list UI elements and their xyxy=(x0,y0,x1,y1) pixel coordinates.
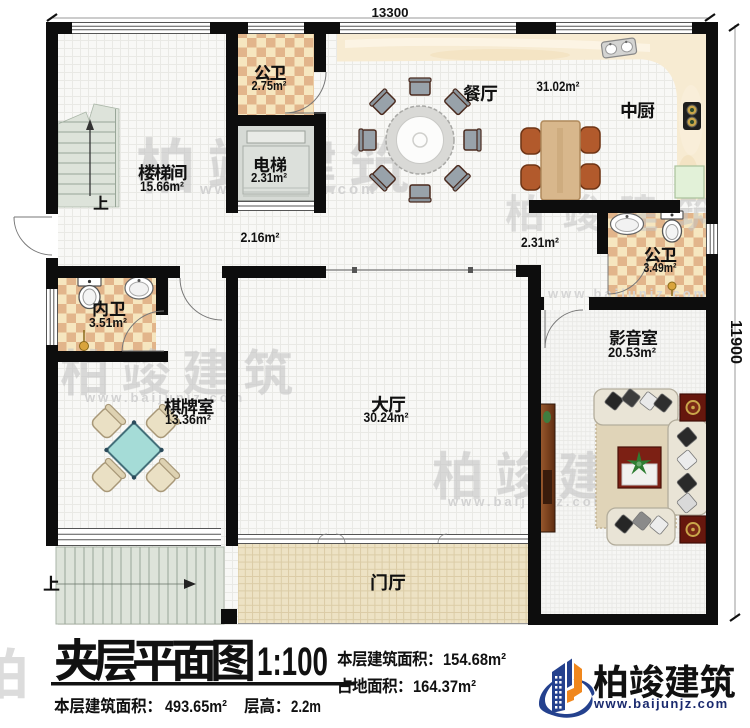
svg-text:3.49m²: 3.49m² xyxy=(644,261,677,275)
svg-text:www.baijunjz.com: www.baijunjz.com xyxy=(447,494,608,509)
svg-text:15.66m²: 15.66m² xyxy=(140,179,184,194)
svg-text:2.31m²: 2.31m² xyxy=(251,170,288,185)
svg-text:3.51m²: 3.51m² xyxy=(89,315,128,330)
svg-text:11900: 11900 xyxy=(727,320,744,364)
svg-text:1:100: 1:100 xyxy=(257,640,328,684)
svg-text:www.baijunjz.com: www.baijunjz.com xyxy=(84,390,245,405)
svg-text:2.75m²: 2.75m² xyxy=(252,78,288,93)
svg-text:13.36m²: 13.36m² xyxy=(165,412,211,427)
svg-text:2.2m: 2.2m xyxy=(291,697,321,716)
svg-text:www.baijunjz.com: www.baijunjz.com xyxy=(593,696,729,711)
svg-text:2.16m²: 2.16m² xyxy=(241,230,280,245)
svg-text:493.65m²: 493.65m² xyxy=(165,697,227,716)
svg-text:13300: 13300 xyxy=(372,5,409,20)
svg-text:30.24m²: 30.24m² xyxy=(364,410,409,425)
svg-text:2.31m²: 2.31m² xyxy=(521,235,559,250)
svg-text:164.37m²: 164.37m² xyxy=(413,678,476,696)
svg-text:31.02m²: 31.02m² xyxy=(537,79,580,94)
svg-text:20.53m²: 20.53m² xyxy=(608,345,656,360)
svg-text:154.68m²: 154.68m² xyxy=(443,651,506,669)
